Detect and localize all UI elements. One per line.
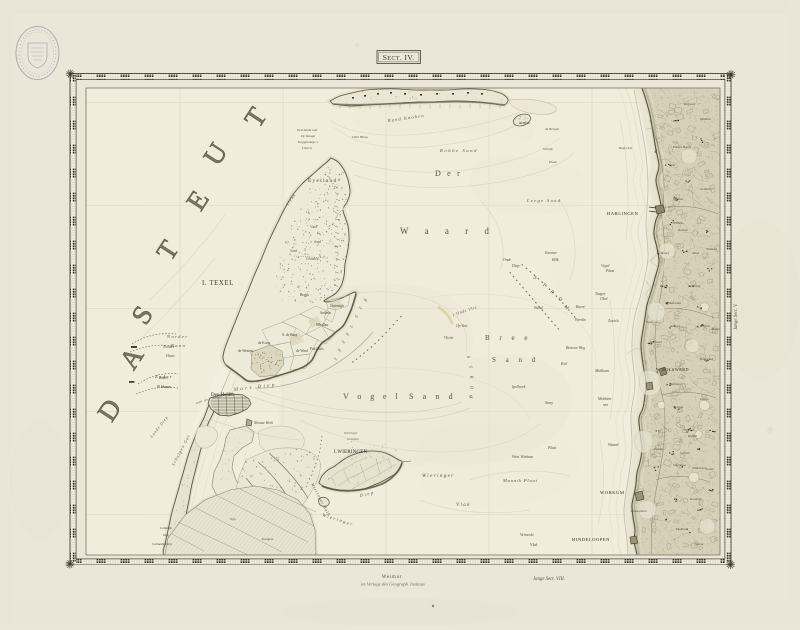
svg-text:Eyerlands Gat: Eyerlands Gat [296,128,318,132]
svg-text:Baan: Baan [171,343,186,348]
svg-text:S a n d: S a n d [492,356,539,364]
svg-text:Stavor: Stavor [695,542,705,546]
svg-text:Hagbin: Hagbin [700,324,710,328]
svg-text:Achband: Achband [657,251,669,255]
svg-text:Gronden: Gronden [306,257,319,261]
svg-text:Wieringer: Wieringer [422,474,455,479]
svg-text:Op Vate: Op Vate [456,324,468,328]
svg-text:Wand: Wand [534,306,543,310]
svg-text:Ritklin: Ritklin [688,434,698,438]
svg-text:Parega: Parega [654,447,664,451]
svg-text:Vogel: Vogel [601,264,609,268]
svg-text:V o g e l: V o g e l [343,392,401,401]
svg-text:Sand: Sand [290,249,297,253]
svg-text:Liberty: Liberty [301,146,313,150]
svg-text:im Verlage des Geograph. Insti: im Verlage des Geograph. Instituts [361,582,425,587]
svg-text:Robbe Sand: Robbe Sand [439,148,478,153]
svg-text:Flonserland: Flonserland [631,509,647,513]
svg-text:Makkum: Makkum [594,368,609,373]
svg-text:Suthein: Suthein [320,311,331,315]
svg-text:S. de Burg: S. de Burg [282,333,297,337]
svg-text:Molkwar: Molkwar [676,527,689,531]
svg-text:de Ward: de Ward [296,349,308,353]
svg-text:Zuder: Zuder [155,374,173,379]
svg-text:Zyp: Zyp [230,517,236,521]
svg-text:De Kooge: De Kooge [300,134,316,138]
svg-text:Vlak: Vlak [530,542,538,547]
svg-text:Norder: Norder [166,334,189,339]
svg-text:Whallan: Whallan [316,323,328,327]
svg-text:Witmars: Witmars [706,247,718,251]
svg-text:Hebsen: Hebsen [678,228,688,232]
svg-text:Plaat: Plaat [548,160,558,164]
svg-text:Ostersigh: Ostersigh [330,304,344,308]
svg-text:Boere: Boere [576,305,585,309]
svg-text:Schulp: Schulp [543,147,553,151]
svg-text:Zyls: Zyls [669,163,676,167]
svg-text:Tauger: Tauger [595,292,606,296]
svg-text:de Bergen: de Bergen [545,127,559,131]
svg-text:Callands Diep: Callands Diep [152,542,172,546]
svg-text:Beyta Zyl: Beyta Zyl [619,146,632,150]
svg-text:Jange Sect. VIII.: Jange Sect. VIII. [533,577,565,582]
svg-text:de Westen: de Westen [238,349,253,353]
svg-text:Wins: Wins [646,320,654,324]
svg-text:Weimar: Weimar [382,575,403,580]
svg-text:Haax: Haax [165,353,175,358]
svg-text:Pieters Banda: Pieters Banda [673,145,692,149]
svg-text:Vlieter: Vlieter [444,336,454,340]
svg-text:Baan: Baan [157,384,172,389]
svg-text:WORKUM: WORKUM [600,490,624,495]
svg-text:Zurich: Zurich [608,318,619,323]
svg-text:I. TEXEL: I. TEXEL [202,280,234,287]
svg-text:Munnik Plaat: Munnik Plaat [502,478,538,483]
svg-text:Sobonvea: Sobonvea [673,463,687,467]
svg-text:Withmorum: Withmorum [665,301,681,305]
svg-text:Sermilt: Sermilt [680,451,690,455]
svg-text:HARLINGEN: HARLINGEN [607,211,638,216]
svg-text:W a a r d: W a a r d [400,226,496,236]
svg-text:Achlum: Achlum [700,187,711,191]
svg-text:Lemmen: Lemmen [669,382,681,386]
svg-text:Boghtbay: Boghtbay [688,284,701,288]
svg-text:Emmer: Emmer [544,250,557,255]
svg-text:Kimswd: Kimswd [684,102,696,106]
svg-text:Brouwe Weg: Brouwe Weg [566,346,585,350]
svg-text:SECT. IV.: SECT. IV. [383,53,415,62]
svg-text:Leege Sand: Leege Sand [526,198,561,203]
svg-text:Pyam: Pyam [660,284,668,288]
svg-text:Eyerland: Eyerland [308,178,337,184]
svg-text:Jange Sect. V.: Jange Sect. V. [734,303,739,330]
svg-text:Koudum: Koudum [690,497,702,501]
svg-text:Burgwerd: Burgwerd [700,357,713,361]
svg-text:S a n d: S a n d [409,392,456,401]
svg-text:Koggeumige s: Koggeumige s [297,140,319,144]
svg-text:Bregh: Bregh [300,293,309,297]
svg-text:Plaat: Plaat [605,269,615,273]
svg-text:Idsega: Idsega [700,397,709,401]
svg-text:Onde: Onde [503,258,512,262]
svg-text:Kiel: Kiel [560,362,567,366]
svg-text:Koegras: Koegras [262,537,274,541]
svg-text:Callands: Callands [160,526,173,530]
svg-text:Wieringer: Wieringer [344,431,358,435]
svg-text:Ipolhoek: Ipolhoek [511,385,526,389]
svg-text:Bilk: Bilk [552,257,559,262]
svg-text:de Koog: de Koog [258,341,270,345]
svg-text:Wilben: Wilben [673,221,683,225]
svg-text:BOLSWARD: BOLSWARD [662,367,689,372]
svg-text:Waard: Waard [608,442,619,447]
svg-text:Timberwd: Timberwd [692,466,706,470]
svg-text:Stray: Stray [545,401,553,405]
svg-text:Gronden: Gronden [347,437,359,441]
svg-text:Sand: Sand [314,240,321,244]
svg-text:see: see [603,402,608,407]
svg-text:Nieuwe Werk: Nieuwe Werk [253,421,273,425]
svg-text:Vard: Vard [310,225,317,229]
svg-text:HINDELOOPEN: HINDELOOPEN [572,537,610,542]
svg-text:Achward: Achward [650,340,662,344]
svg-text:de BOL: de BOL [519,121,530,125]
svg-text:Wassen: Wassen [673,197,683,201]
svg-text:Veinecke: Veinecke [520,532,534,537]
svg-text:D e r: D e r [435,169,462,178]
svg-text:I.WIERINGEN: I.WIERINGEN [334,450,368,455]
svg-text:Plaat: Plaat [547,446,557,450]
svg-text:West Wiekum: West Wiekum [512,454,533,459]
svg-text:Tartinta: Tartinta [673,405,684,409]
svg-text:Arlston: Arlston [670,324,680,328]
svg-text:Oog: Oog [163,533,169,537]
svg-text:Oled: Oled [600,297,607,301]
svg-text:Wolsen: Wolsen [684,428,694,432]
svg-text:Pah Sluis: Pah Sluis [310,347,324,351]
svg-text:B r e e: B r e e [485,334,531,342]
svg-text:Vlak: Vlak [456,503,471,508]
svg-text:Mobben: Mobben [598,396,611,401]
svg-text:Werdin: Werdin [575,318,586,322]
svg-text:Gaast: Gaast [706,467,714,471]
svg-text:Allen: Allen [692,251,700,255]
svg-text:Diep: Diep [511,264,519,268]
svg-text:Oliet Hoog: Oliet Hoog [352,135,368,139]
svg-text:Midlum: Midlum [700,117,711,121]
